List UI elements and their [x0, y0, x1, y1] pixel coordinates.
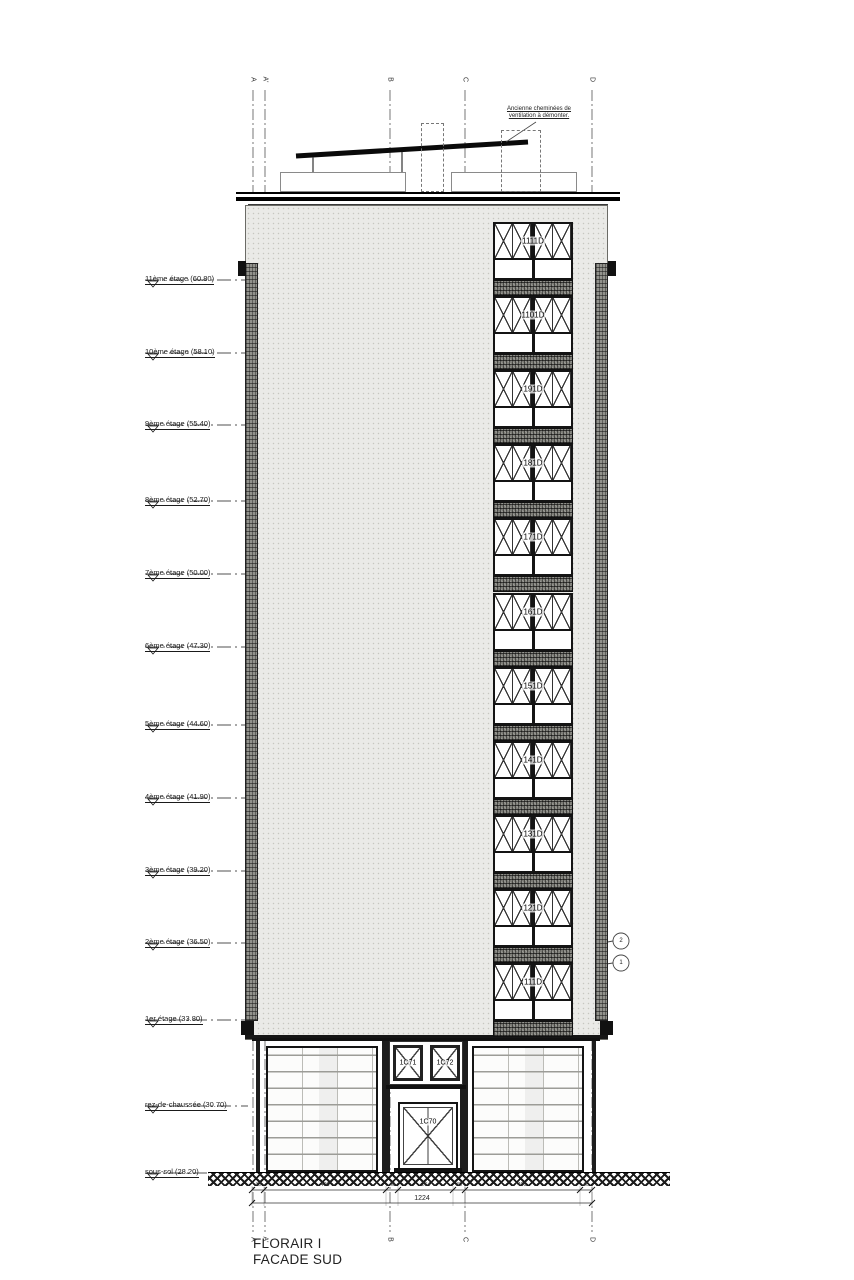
- ground-window-left: 1C71: [393, 1045, 423, 1081]
- window-module: 141D: [493, 741, 573, 815]
- masonry-wall-right: [472, 1046, 584, 1172]
- ground-window-sill: [386, 1085, 466, 1089]
- ground-window-box: 1C71 1C72: [389, 1041, 463, 1085]
- window-module: 1101D: [493, 296, 573, 370]
- level-label: 10ème étage (58.10): [145, 347, 215, 358]
- window-lower-sash: [493, 260, 573, 280]
- grid-label-bottom-c: C: [462, 1235, 469, 1245]
- window-pane: [535, 1001, 572, 1019]
- window-pane: [495, 556, 532, 574]
- entrance-door: 1C70: [398, 1102, 458, 1170]
- drawing-title: FACADE SUD: [253, 1252, 342, 1268]
- level-label: 4ème étage (41.90): [145, 792, 210, 803]
- roof-note-line1: Ancienne cheminées de: [495, 106, 583, 113]
- level-marker: 6ème étage (47.30): [145, 635, 250, 647]
- dim-segment: 40: [255, 1182, 261, 1188]
- ground-window-left-label: 1C71: [396, 1060, 420, 1067]
- chimney-outline-narrow: [421, 123, 444, 192]
- window-lower-sash: [493, 631, 573, 651]
- window-label: 111D: [495, 978, 571, 987]
- window-sash: 131D: [493, 815, 573, 853]
- window-pane: [495, 631, 532, 649]
- window-module: 1111D: [493, 222, 573, 296]
- window-sash: 191D: [493, 370, 573, 408]
- spandrel-band: [493, 947, 573, 963]
- dim-segment: 264: [421, 1182, 430, 1188]
- ground-column-right-edge: [592, 1041, 596, 1172]
- level-marker: 3ème étage (39.20): [145, 859, 250, 871]
- window-label: 161D: [495, 608, 571, 617]
- window-module: 171D: [493, 518, 573, 592]
- window-pane: [535, 631, 572, 649]
- pilaster-foot-left: [241, 1021, 254, 1035]
- dim-segment: 400: [517, 1182, 526, 1188]
- window-lower-sash: [493, 556, 573, 576]
- level-label: sous-sol (28.20): [145, 1167, 199, 1178]
- window-lower-sash: [493, 853, 573, 873]
- level-label: 6ème étage (47.30): [145, 641, 210, 652]
- window-pane: [495, 1001, 532, 1019]
- level-marker: 5ème étage (44.60): [145, 713, 250, 725]
- window-label: 1101D: [495, 311, 571, 320]
- level-marker: 9ème étage (55.40): [145, 413, 250, 425]
- ground-window-right: 1C72: [430, 1045, 460, 1081]
- dim-segment: 40: [456, 1182, 462, 1188]
- window-lower-sash: [493, 1001, 573, 1021]
- level-marker: 4ème étage (41.90): [145, 786, 250, 798]
- level-marker: 10ème étage (58.10): [145, 341, 250, 353]
- window-sash: 1111D: [493, 222, 573, 260]
- window-sash: 111D: [493, 963, 573, 1001]
- window-pane: [535, 927, 572, 945]
- window-module: 131D: [493, 815, 573, 889]
- window-module: 181D: [493, 444, 573, 518]
- window-sash: 1101D: [493, 296, 573, 334]
- level-marker: rez-de-chaussée (30.70): [145, 1094, 250, 1106]
- spandrel-band: [493, 428, 573, 444]
- level-label: 11ème étage (60.80): [145, 274, 214, 285]
- window-pane: [535, 556, 572, 574]
- level-label: 5ème étage (44.60): [145, 719, 210, 730]
- spandrel-band: [493, 1021, 573, 1037]
- roof-note-line2: ventilation à démonter.: [495, 113, 583, 120]
- window-pane: [495, 927, 532, 945]
- pilaster-foot-right: [600, 1021, 613, 1035]
- drawing-sheet: Ancienne cheminées de ventilation à démo…: [0, 0, 854, 1280]
- window-label: 141D: [495, 756, 571, 765]
- window-pane: [535, 408, 572, 426]
- grid-label-bottom-b: B: [387, 1235, 394, 1245]
- project-title: FLORAIR I: [253, 1236, 342, 1252]
- window-sash: 141D: [493, 741, 573, 779]
- grid-label-top-b: B: [387, 75, 394, 85]
- window-label: 131D: [495, 830, 571, 839]
- window-label: 191D: [495, 385, 571, 394]
- spandrel-band: [493, 873, 573, 889]
- window-module: 151D: [493, 667, 573, 741]
- spandrel-band: [493, 280, 573, 296]
- spandrel-band: [493, 651, 573, 667]
- window-label: 171D: [495, 533, 571, 542]
- window-pane: [495, 260, 532, 278]
- window-module: 191D: [493, 370, 573, 444]
- masonry-wall-left: [266, 1046, 378, 1172]
- window-lower-sash: [493, 334, 573, 354]
- facade-fin-right: [608, 261, 616, 276]
- window-pane: [495, 408, 532, 426]
- pilaster-right: [595, 263, 608, 1021]
- level-marker: 8ème étage (52.70): [145, 489, 250, 501]
- grid-label-top-d: D: [589, 75, 596, 85]
- level-label: 7ème étage (50.00): [145, 568, 210, 579]
- window-lower-sash: [493, 408, 573, 428]
- window-label: 121D: [495, 904, 571, 913]
- spandrel-band: [493, 354, 573, 370]
- window-lower-sash: [493, 927, 573, 947]
- window-module: 111D: [493, 963, 573, 1037]
- spandrel-band: [493, 725, 573, 741]
- grid-label-top-a: A: [250, 75, 257, 85]
- level-marker: 11ème étage (60.80): [145, 268, 250, 280]
- ground-column-left-edge: [256, 1041, 260, 1172]
- spandrel-band: [493, 799, 573, 815]
- window-module: 121D: [493, 889, 573, 963]
- window-label: 181D: [495, 459, 571, 468]
- dim-segment: 40: [583, 1182, 589, 1188]
- door-label: 1C70: [400, 1118, 456, 1125]
- window-label: 151D: [495, 682, 571, 691]
- window-module: 161D: [493, 593, 573, 667]
- window-pane: [535, 260, 572, 278]
- grid-label-top-a2: A': [262, 75, 269, 85]
- level-label: 9ème étage (55.40): [145, 419, 210, 430]
- level-marker: 7ème étage (50.00): [145, 562, 250, 574]
- chimney-outline-wide: [501, 130, 541, 192]
- roof-slab: [236, 192, 620, 201]
- dim-total: 1224: [412, 1195, 432, 1202]
- ground-hatch: [208, 1172, 670, 1186]
- window-sash: 181D: [493, 444, 573, 482]
- level-label: rez-de-chaussée (30.70): [145, 1100, 227, 1111]
- spandrel-band: [493, 502, 573, 518]
- window-lower-sash: [493, 482, 573, 502]
- grid-label-top-c: C: [462, 75, 469, 85]
- window-pane: [535, 853, 572, 871]
- spandrel-band: [493, 576, 573, 592]
- level-marker: 1er étage (33.80): [145, 1008, 250, 1020]
- roof-note: Ancienne cheminées de ventilation à démo…: [495, 106, 583, 120]
- grid-label-bottom-d: D: [589, 1235, 596, 1245]
- window-lower-sash: [493, 705, 573, 725]
- window-pane: [495, 482, 532, 500]
- door-leaf: [403, 1107, 453, 1165]
- window-pane: [535, 334, 572, 352]
- window-pane: [535, 779, 572, 797]
- window-sash: 151D: [493, 667, 573, 705]
- window-pane: [495, 334, 532, 352]
- level-label: 8ème étage (52.70): [145, 495, 210, 506]
- window-sash: 161D: [493, 593, 573, 631]
- roof-penthouse-left: [280, 172, 406, 192]
- callout-1-number: 1: [617, 960, 625, 966]
- window-sash: 121D: [493, 889, 573, 927]
- ground-window-right-label: 1C72: [433, 1060, 457, 1067]
- callout-2-number: 2: [617, 938, 625, 944]
- window-pane: [535, 705, 572, 723]
- window-lower-sash: [493, 779, 573, 799]
- level-label: 1er étage (33.80): [145, 1014, 203, 1025]
- window-pane: [535, 482, 572, 500]
- level-label: 2ème étage (36.50): [145, 937, 210, 948]
- title-block: FLORAIR I FACADE SUD: [253, 1236, 342, 1268]
- window-pane: [495, 853, 532, 871]
- dim-segment: 400: [320, 1182, 329, 1188]
- dim-segment: 40: [389, 1182, 395, 1188]
- window-label: 1111D: [495, 237, 571, 246]
- level-label: 3ème étage (39.20): [145, 865, 210, 876]
- window-sash: 171D: [493, 518, 573, 556]
- window-pane: [495, 779, 532, 797]
- level-marker: 2ème étage (36.50): [145, 931, 250, 943]
- window-pane: [495, 705, 532, 723]
